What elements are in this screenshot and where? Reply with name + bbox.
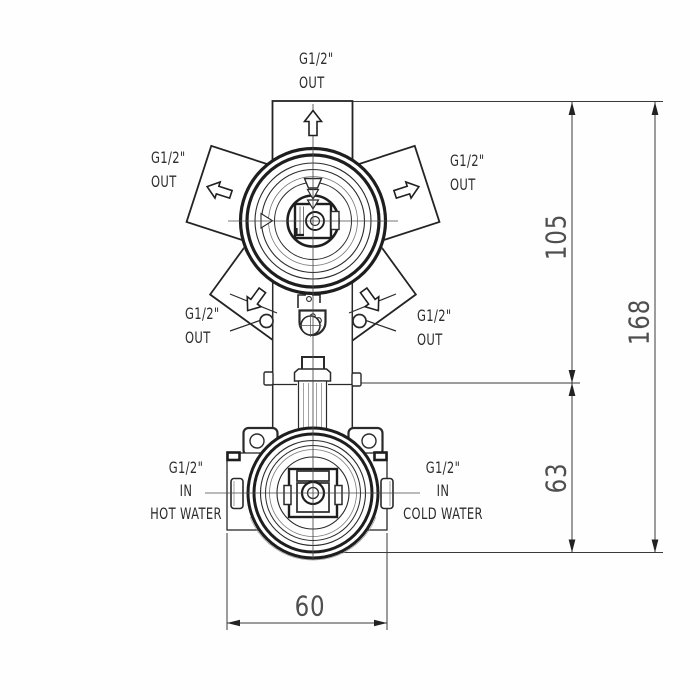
flange-tab-left: [264, 372, 273, 385]
drawing-linework: [0, 0, 700, 700]
inlet-port-right: [381, 479, 393, 509]
dimension-60: 60: [295, 590, 326, 623]
outlet-label-top: G1/2"OUT: [299, 47, 334, 95]
outlet-label-lower-left: G1/2"OUT: [185, 302, 220, 350]
dimension-63: 63: [540, 463, 573, 494]
valve-collar: [295, 369, 331, 381]
screw-left-icon: [260, 315, 273, 328]
outlet-label-upper-right: G1/2"OUT: [450, 149, 485, 197]
flange-tab-right: [352, 373, 361, 386]
technical-drawing-shower-valve: G1/2"OUT G1/2"OUT G1/2"OUT G1/2"OUT G1/2…: [0, 0, 700, 700]
ear-hole-right: [362, 434, 376, 448]
ear-hole-left: [250, 434, 264, 448]
inlet-label-cold: G1/2"INCOLD WATER: [393, 456, 494, 525]
dimension-105: 105: [540, 214, 573, 260]
screw-right-icon: [353, 315, 366, 328]
inlet-label-hot: G1/2"INHOT WATER: [136, 456, 237, 525]
dimension-168: 168: [623, 299, 656, 345]
outlet-label-lower-right: G1/2"OUT: [417, 304, 452, 352]
corner-tab-right: [375, 453, 387, 461]
outlet-label-upper-left: G1/2"OUT: [151, 146, 186, 194]
